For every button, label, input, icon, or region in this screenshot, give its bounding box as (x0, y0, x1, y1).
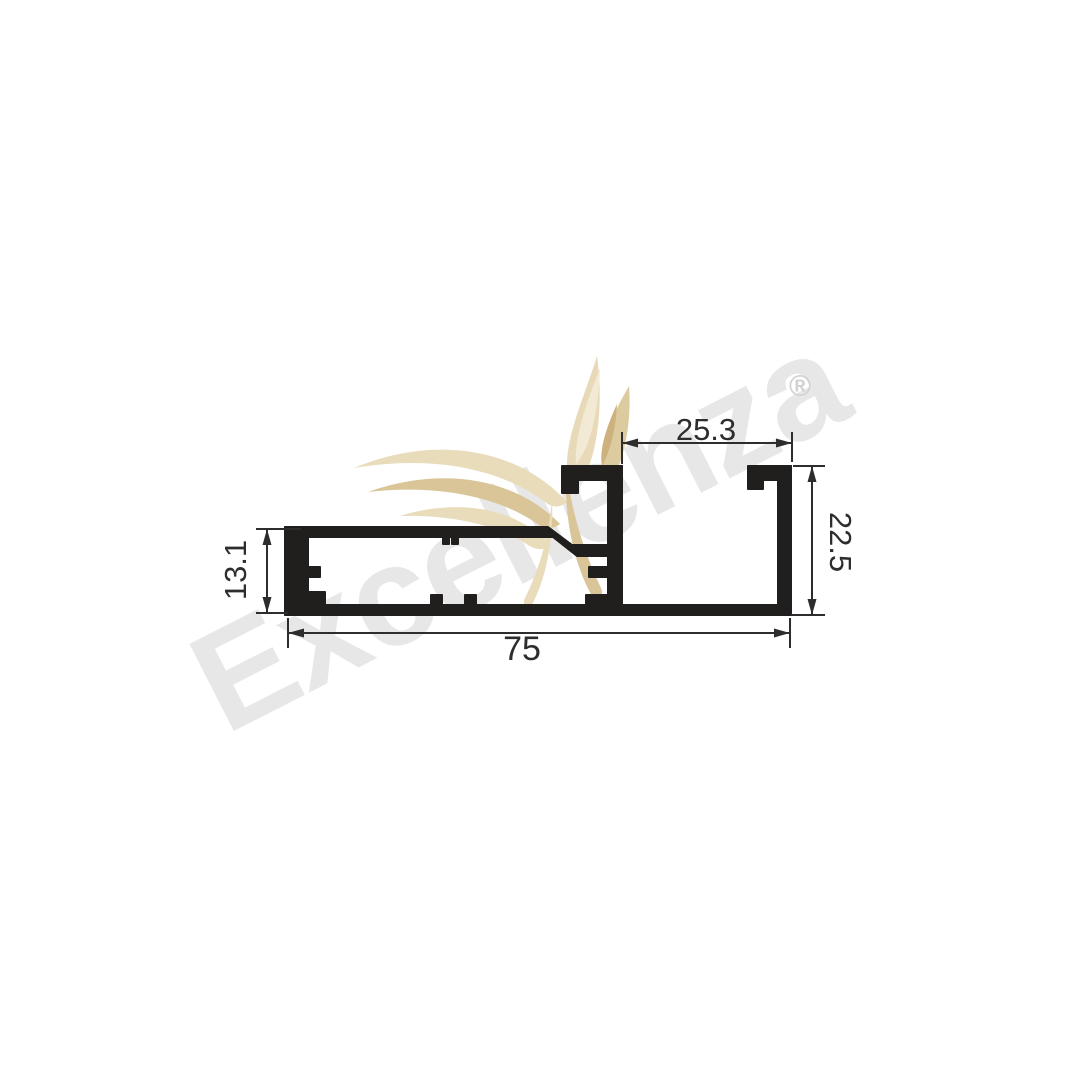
dim-label-total-width: 75 (503, 630, 541, 668)
watermark-registered-icon: ® (789, 370, 811, 403)
profile-corner-step (308, 592, 325, 605)
arrow-right-icon (774, 629, 790, 638)
arrow-up-icon (263, 529, 272, 545)
profile-bottom-wall (285, 605, 791, 615)
profile-left-hook-lip (562, 478, 578, 493)
profile-right-wall (778, 466, 791, 615)
profile-post-nub (589, 567, 608, 577)
dim-label-opening-width: 25.3 (676, 412, 736, 447)
profile-bottom-nub-2 (465, 595, 476, 605)
profile-left-wall (285, 527, 308, 615)
profile-leftwall-nub (308, 567, 320, 577)
profile-bottom-nub-1 (431, 595, 442, 605)
profile-right-hook-lip (748, 478, 763, 489)
dim-label-left-height: 13.1 (218, 540, 253, 600)
dim-label-right-height: 22.5 (823, 512, 858, 572)
technical-drawing-page: Excellenza ® (0, 0, 1080, 1080)
profile-post-foot (586, 595, 608, 605)
profile-top-tick-1 (443, 537, 449, 544)
profile-center-post (608, 466, 622, 615)
arrow-down-icon (808, 599, 817, 615)
profile-drawing-svg: Excellenza ® (0, 0, 1080, 1080)
profile-top-tick-2 (452, 537, 458, 544)
dim-right-height (791, 466, 825, 615)
